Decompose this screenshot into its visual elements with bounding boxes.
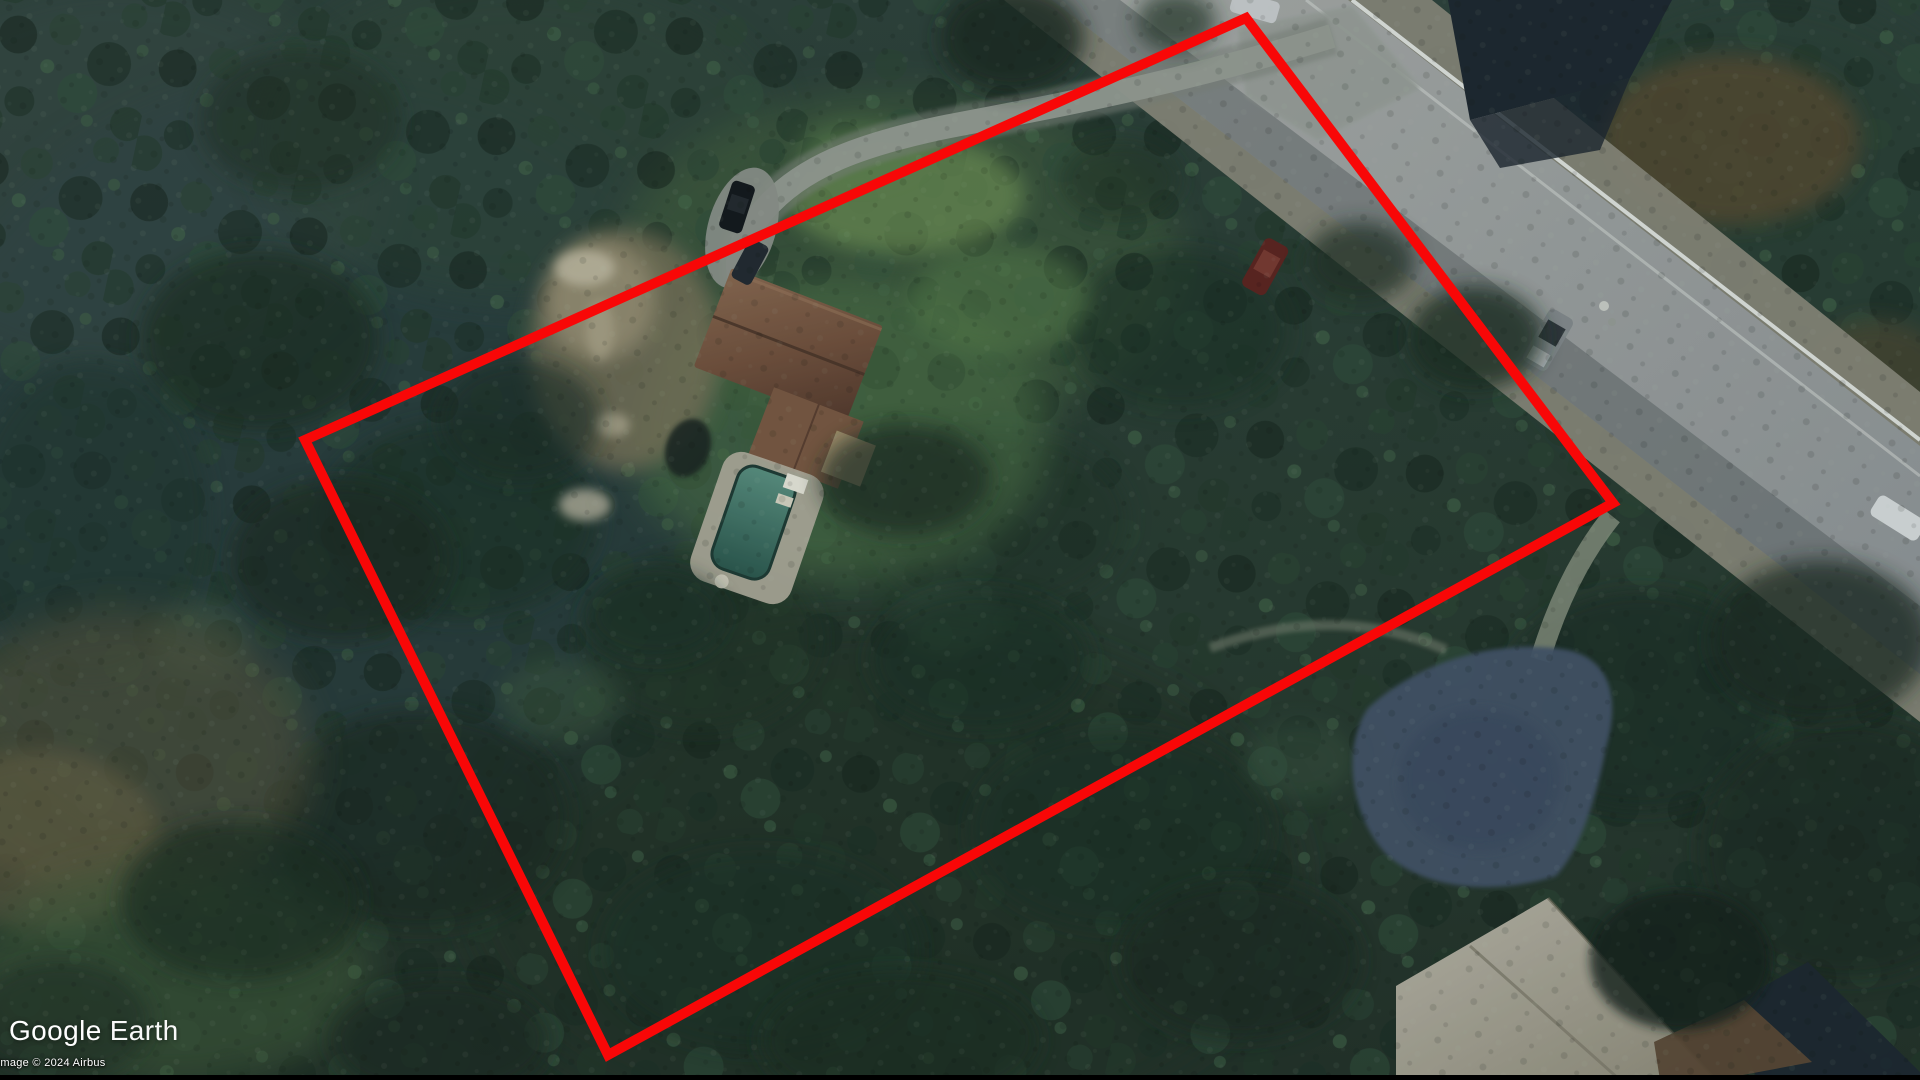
map-viewport[interactable]: GoogleEarth Image © 2024 Airbus <box>0 0 1920 1080</box>
google-earth-logo: GoogleEarth <box>9 1015 179 1047</box>
imagery-attribution: Image © 2024 Airbus <box>0 1057 106 1069</box>
logo-product: Earth <box>110 1015 179 1046</box>
logo-brand: Google <box>9 1015 102 1046</box>
bottom-letterbox-bar <box>0 1075 1920 1080</box>
aerial-imagery <box>0 0 1920 1080</box>
